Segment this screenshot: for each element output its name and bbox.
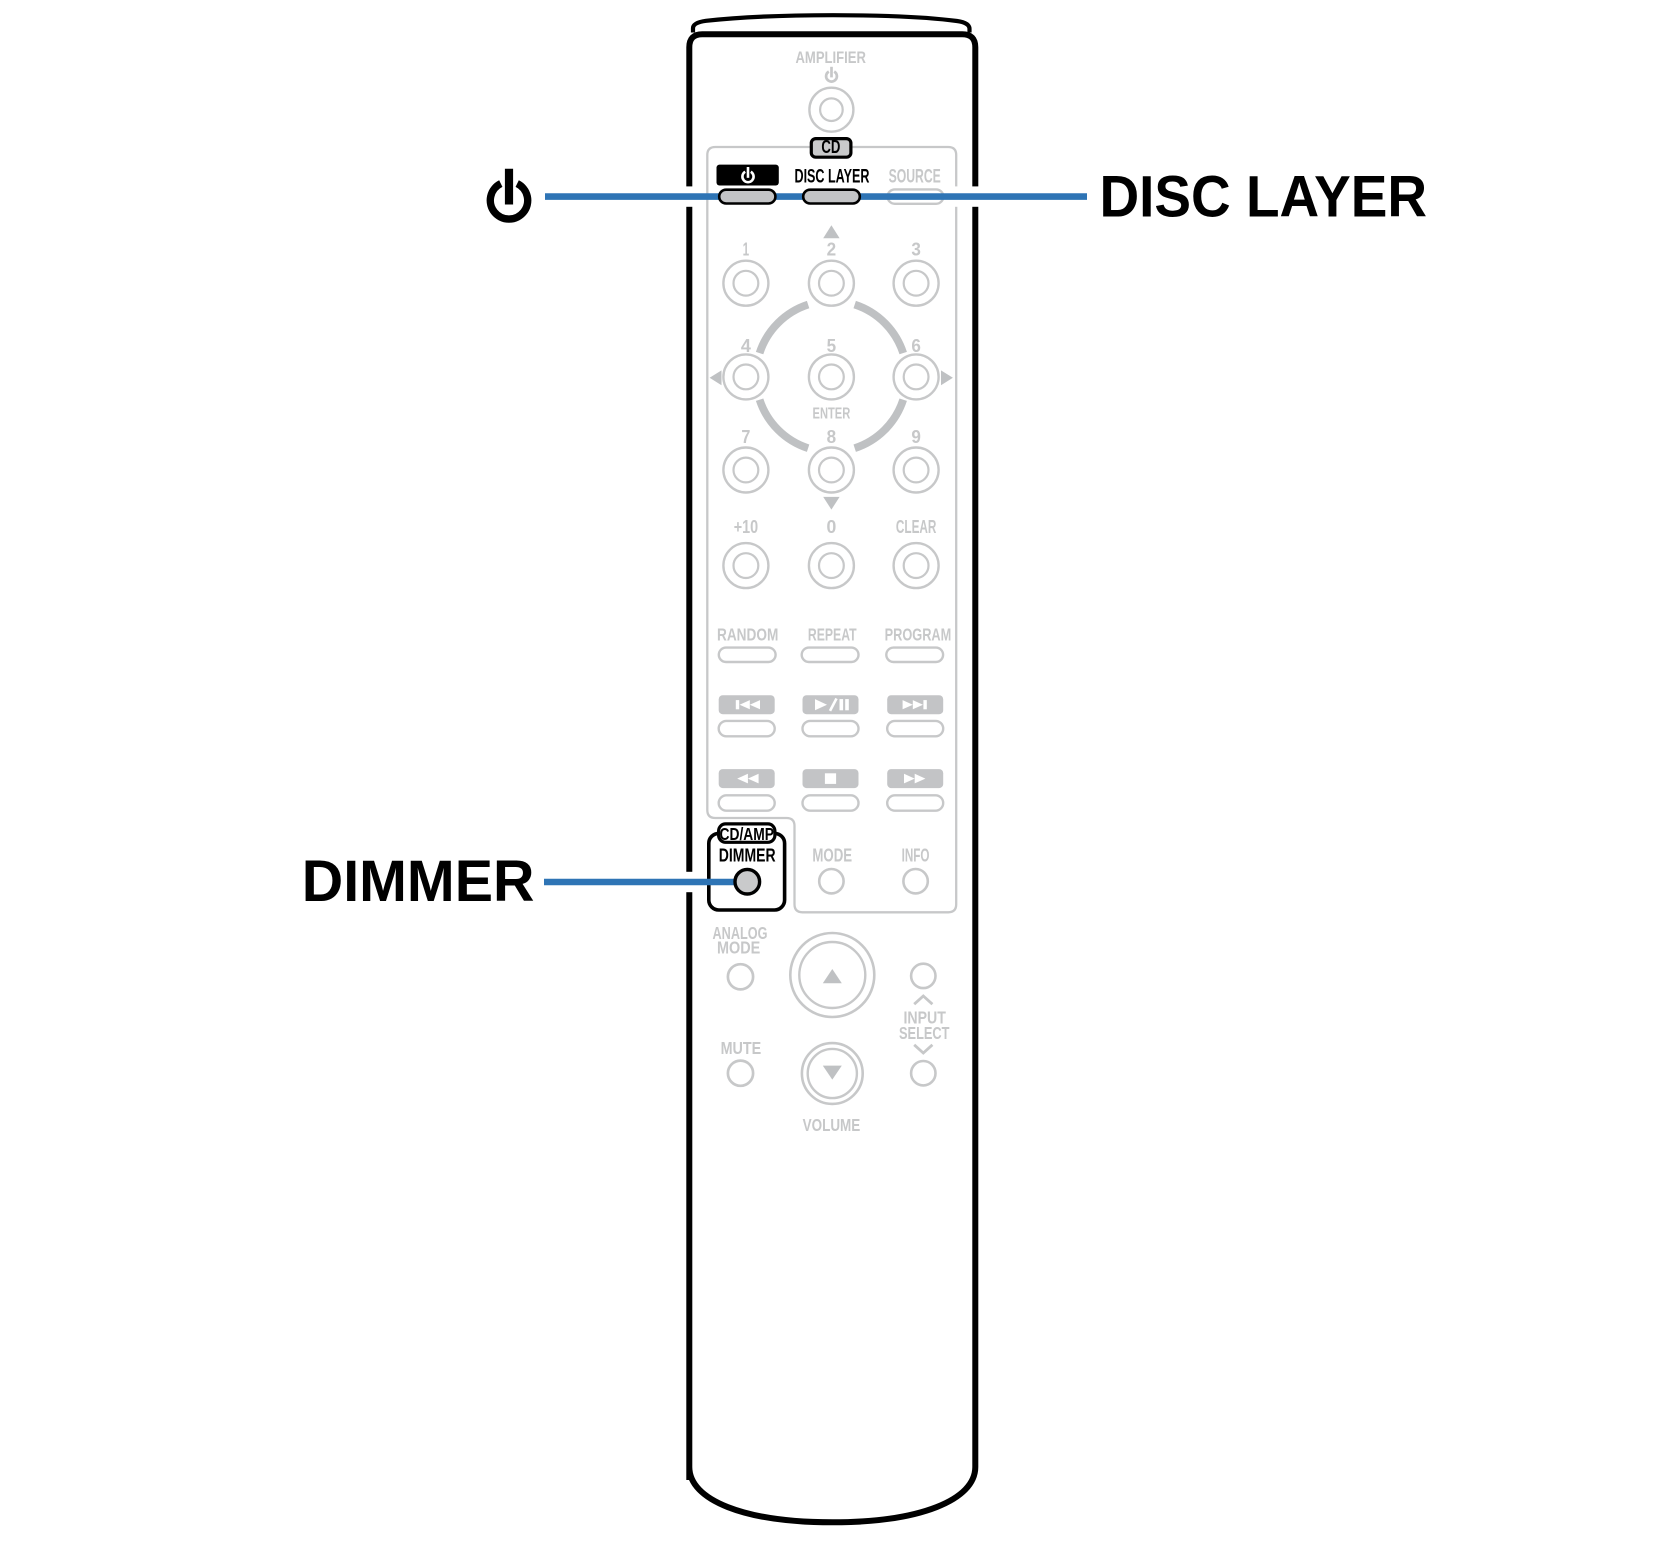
svg-text:REPEAT: REPEAT bbox=[808, 624, 857, 644]
svg-text:SELECT: SELECT bbox=[899, 1023, 950, 1043]
svg-text:6: 6 bbox=[911, 336, 921, 356]
svg-text:VOLUME: VOLUME bbox=[803, 1115, 861, 1135]
svg-text:ENTER: ENTER bbox=[813, 405, 851, 422]
svg-text:7: 7 bbox=[741, 427, 750, 447]
svg-text:2: 2 bbox=[827, 240, 837, 260]
svg-text:PROGRAM: PROGRAM bbox=[885, 624, 952, 644]
svg-text:3: 3 bbox=[911, 240, 921, 260]
svg-text:DISC LAYER: DISC LAYER bbox=[1100, 165, 1428, 230]
svg-text:8: 8 bbox=[827, 427, 837, 447]
svg-text:CD/AMP: CD/AMP bbox=[720, 824, 775, 844]
svg-text:MUTE: MUTE bbox=[721, 1038, 762, 1058]
svg-text:+10: +10 bbox=[734, 517, 758, 537]
svg-text:0: 0 bbox=[827, 517, 837, 537]
svg-text:AMPLIFIER: AMPLIFIER bbox=[796, 48, 866, 67]
svg-text:1: 1 bbox=[743, 240, 750, 260]
svg-text:CD: CD bbox=[821, 137, 840, 157]
svg-text:DISC LAYER: DISC LAYER bbox=[795, 166, 870, 188]
svg-text:RANDOM: RANDOM bbox=[717, 624, 778, 644]
svg-text:INFO: INFO bbox=[902, 844, 930, 865]
svg-text:DIMMER: DIMMER bbox=[302, 849, 535, 914]
svg-text:DIMMER: DIMMER bbox=[719, 844, 776, 865]
svg-text:9: 9 bbox=[911, 427, 921, 447]
svg-text:MODE: MODE bbox=[717, 937, 760, 957]
svg-text:SOURCE: SOURCE bbox=[889, 166, 941, 188]
svg-text:MODE: MODE bbox=[812, 844, 852, 865]
svg-text:5: 5 bbox=[827, 336, 837, 356]
svg-text:CLEAR: CLEAR bbox=[896, 517, 937, 537]
